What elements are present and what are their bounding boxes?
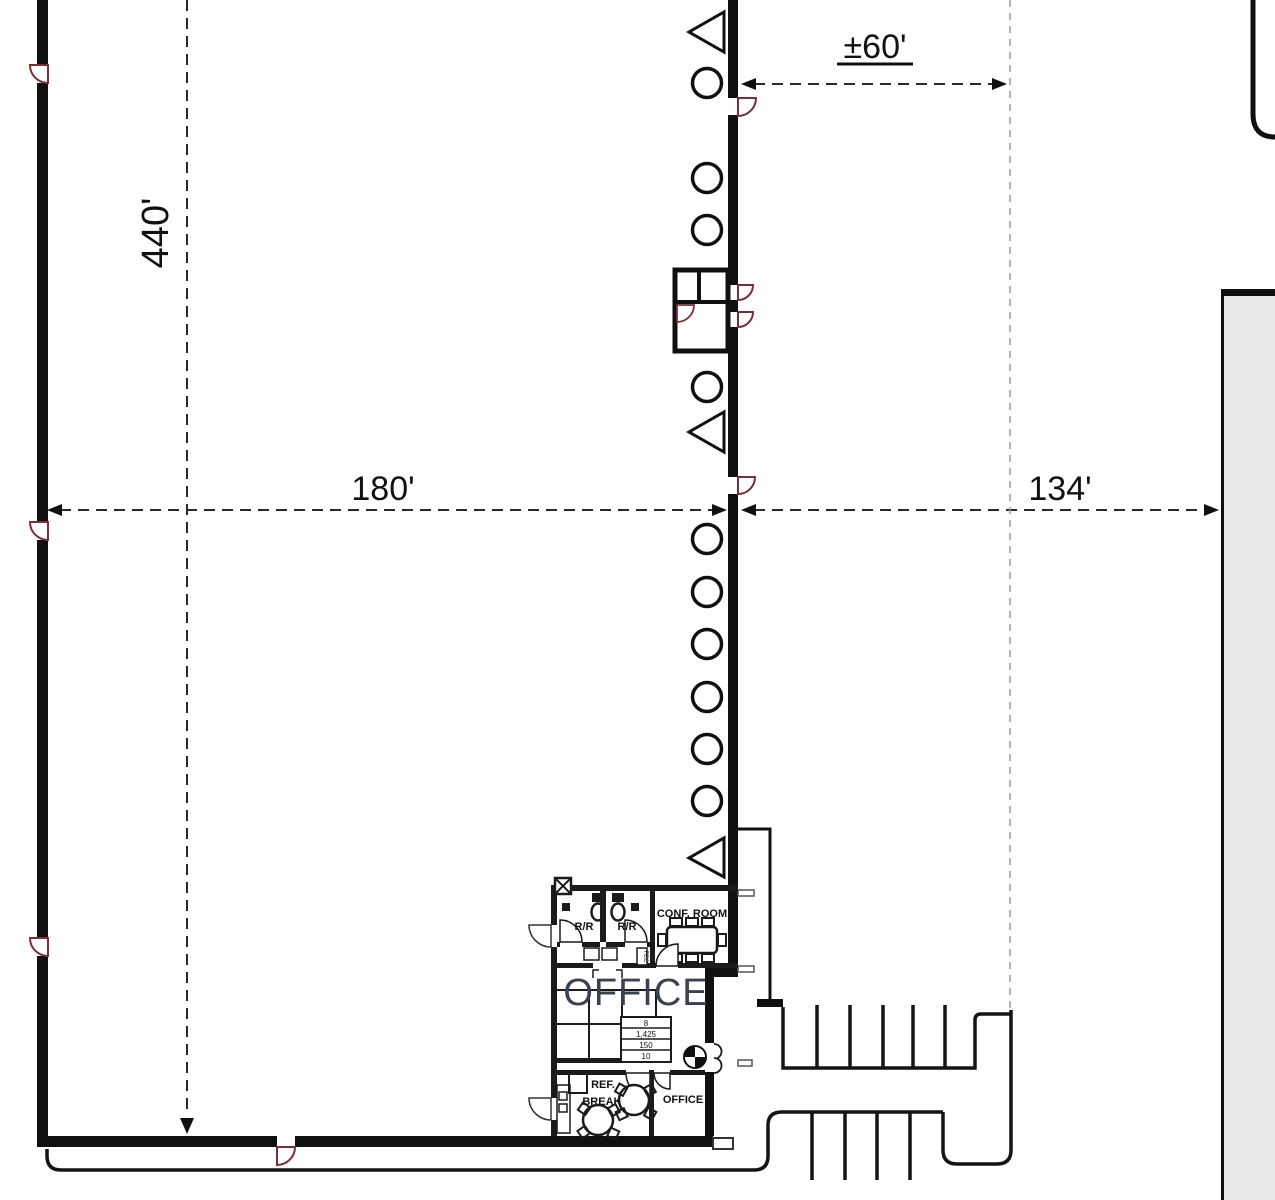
break-top-wall	[670, 1070, 705, 1075]
left-wall	[37, 956, 48, 1147]
arrow-left-60	[741, 78, 756, 90]
adjacent-building-left-wall	[1221, 289, 1224, 1200]
parking-curb-step	[757, 999, 783, 1007]
dock-door-circle	[693, 525, 722, 554]
corner-stoop	[713, 1138, 733, 1149]
stoop-tick	[738, 966, 754, 972]
east-wall-ticks	[738, 890, 754, 1066]
arrow-left-134	[741, 504, 756, 516]
door-swing	[677, 305, 694, 322]
area-table-row: 10	[642, 1052, 651, 1061]
office-main-label: OFFICE	[563, 972, 708, 1014]
dimension-lines	[60, 0, 1206, 1116]
dock-door-circle	[693, 578, 722, 607]
bottom-wall	[295, 1136, 713, 1147]
hall-wall	[557, 963, 593, 968]
arrow-down-440	[180, 1118, 194, 1134]
floor-plan: 440' 180' 134' ±60'	[0, 0, 1275, 1200]
toilet-tank	[592, 893, 604, 902]
left-wall	[37, 540, 48, 938]
adjacent-building	[1221, 289, 1275, 1200]
vestibule-room	[675, 270, 728, 351]
parking	[47, 999, 1011, 1180]
conf-bottom-wall	[678, 963, 738, 968]
dock-door-circle	[693, 69, 722, 98]
dock-ramp-triangle	[689, 838, 724, 877]
area-table: 8 1,425 150 10	[621, 1017, 671, 1062]
fec-label: FEC	[642, 951, 648, 964]
chair	[702, 954, 714, 962]
restroom-wall	[582, 942, 600, 947]
private-office-label: OFFICE	[663, 1094, 703, 1106]
door-swing	[654, 1073, 670, 1089]
break-top-wall	[557, 1070, 626, 1075]
restroom-right-label: R/R	[618, 921, 637, 933]
adjacent-pad-corner	[1253, 0, 1275, 137]
right-wall	[728, 494, 738, 968]
area-table-row: 1,425	[636, 1030, 657, 1039]
wall-fixture	[631, 903, 639, 911]
keynote-quadrant	[695, 1057, 706, 1068]
door-swing	[738, 477, 755, 494]
counter-sink	[559, 1104, 567, 1112]
office-left-wall	[551, 947, 557, 1098]
door-swing	[277, 1147, 295, 1165]
toilet-tank	[612, 893, 624, 902]
sink	[584, 948, 599, 960]
door-swing	[30, 938, 48, 956]
dock-door-circle	[693, 683, 722, 712]
chair	[718, 934, 726, 946]
counter-sink	[559, 1092, 567, 1100]
stoop-tick	[738, 890, 754, 896]
conf-left-wall	[650, 891, 655, 968]
toilet-bowl	[612, 904, 625, 921]
right-wall	[728, 115, 738, 285]
area-table-row: 8	[644, 1019, 649, 1028]
dock-door-circle	[693, 735, 722, 764]
refrigerator-box	[569, 1073, 587, 1093]
refrigerator-label: REF.	[591, 1079, 615, 1091]
chair	[658, 934, 666, 946]
conf-bottom-wall	[650, 963, 656, 968]
door-swing	[738, 312, 753, 327]
restroom-wall	[606, 942, 625, 947]
office-top-wall	[551, 885, 738, 891]
area-table-row: 150	[639, 1041, 653, 1050]
door-swing	[529, 925, 551, 947]
adjacent-building-top-wall	[1221, 289, 1275, 296]
bottom-wall	[37, 1136, 277, 1147]
door-swing	[30, 65, 48, 83]
dock-door-circle	[693, 164, 722, 193]
dim-label-60: ±60'	[844, 28, 907, 66]
door-swing	[529, 1098, 551, 1120]
office-left-wall	[551, 1120, 557, 1136]
door-swing	[30, 522, 48, 540]
exit-door-leaf	[714, 1044, 722, 1059]
parking-right-curb	[943, 1010, 1011, 1164]
dock-ramp-triangle	[689, 12, 724, 52]
floor-plan-svg: 440' 180' 134' ±60'	[0, 0, 1275, 1200]
dim-label-440: 440'	[135, 198, 177, 269]
arrow-right-134	[1204, 504, 1219, 516]
restroom-left-label: R/R	[575, 921, 594, 933]
door-swing	[738, 285, 753, 300]
door-swing	[656, 944, 678, 966]
left-wall	[37, 83, 48, 522]
canopy-line	[738, 829, 770, 1001]
dock-door-circle	[693, 787, 722, 816]
office-left-doors	[529, 925, 551, 1120]
office-east-wall	[705, 1072, 714, 1136]
dock-ramp-triangle	[689, 412, 724, 452]
dock-door-circle	[693, 630, 722, 659]
stoop-tick	[738, 1060, 752, 1066]
dim-label-134: 134'	[1028, 470, 1091, 508]
dock-symbols	[689, 12, 724, 877]
adjacent-building-fill	[1224, 292, 1275, 1200]
exit-door-leaf	[714, 1058, 722, 1073]
dock-door-circle	[693, 373, 722, 402]
sink	[602, 948, 617, 960]
arrow-right-180	[712, 504, 727, 516]
office-exit	[684, 1044, 722, 1073]
arrow-right-60	[992, 78, 1007, 90]
wall-fixture	[562, 903, 570, 911]
arrow-left-180	[47, 504, 62, 516]
door-swing	[738, 98, 756, 116]
dim-label-180: 180'	[351, 470, 414, 508]
dock-door-circle	[693, 216, 722, 245]
chair	[686, 954, 698, 962]
conference-room: CONF. ROOM	[656, 908, 727, 966]
right-wall	[728, 0, 738, 98]
right-wall-step	[705, 968, 738, 977]
left-wall	[37, 0, 48, 65]
keynote-quadrant	[684, 1046, 695, 1057]
